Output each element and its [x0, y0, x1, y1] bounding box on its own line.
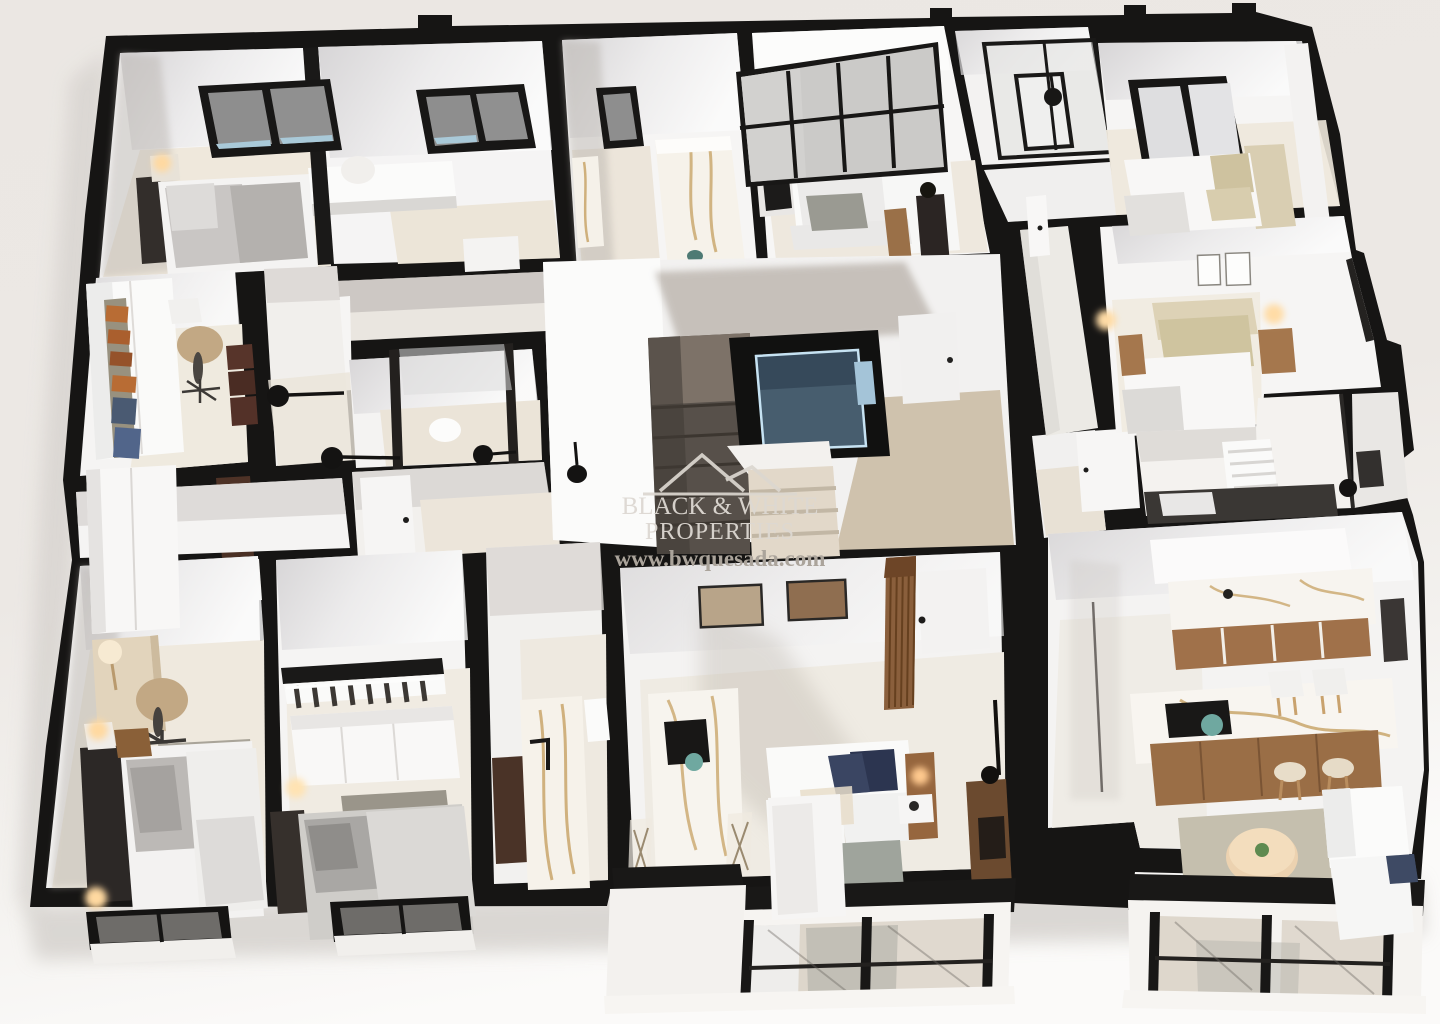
svg-text:BLACK & WHITE: BLACK & WHITE: [622, 493, 819, 520]
svg-text:PROPERTIES: PROPERTIES: [645, 519, 795, 545]
svg-text:www.bwquesada.com: www.bwquesada.com: [615, 546, 826, 571]
